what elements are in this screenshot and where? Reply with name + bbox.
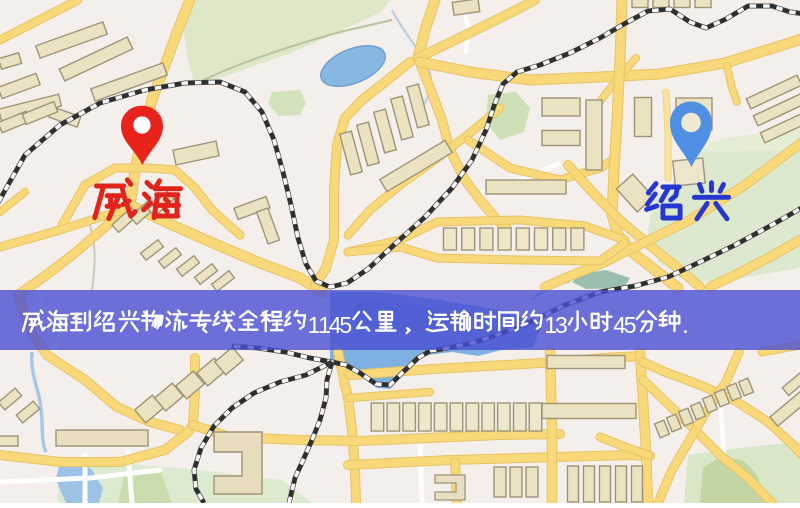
svg-text:.: . [682,311,689,339]
svg-text:5: 5 [624,312,637,338]
svg-text:3: 3 [555,312,568,338]
svg-text:5: 5 [339,312,352,338]
